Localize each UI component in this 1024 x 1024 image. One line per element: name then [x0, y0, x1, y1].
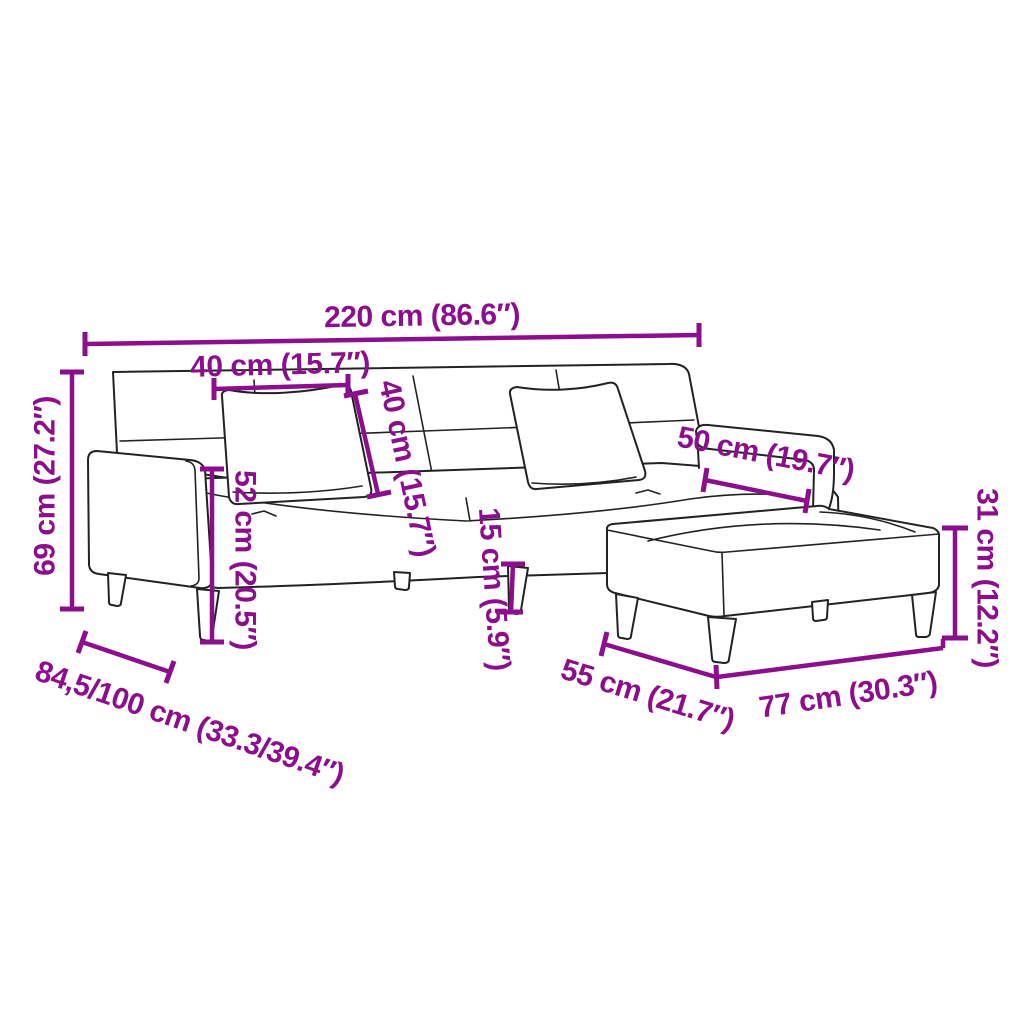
sofa-dimension-diagram: 220 cm (86.6″) 40 cm (15.7″) 40 cm (15.7… [0, 0, 1024, 1024]
diagram-canvas: 220 cm (86.6″) 40 cm (15.7″) 40 cm (15.7… [0, 0, 1024, 1024]
dim-back-height: 69 cm (27.2″) [29, 372, 85, 609]
dimension-label: 31 cm (12.2″) [971, 488, 1004, 668]
sofa-illustration [88, 364, 939, 663]
dimension-label: 84,5/100 cm (33.3/39.4″) [31, 655, 348, 792]
dimension-label: 52 cm (20.5″) [229, 470, 262, 650]
dimension-label: 69 cm (27.2″) [29, 396, 62, 576]
dimension-label: 40 cm (15.7″) [190, 346, 370, 384]
dim-depth-range: 84,5/100 cm (33.3/39.4″) [31, 631, 348, 791]
dim-footstool-height: 31 cm (12.2″) [942, 488, 1004, 668]
dimension-label: 55 cm (21.7″) [557, 653, 738, 737]
dim-footstool-width: 77 cm (30.3″) [717, 639, 943, 725]
dimension-label: 77 cm (30.3″) [757, 665, 940, 724]
sofa-armrest-left [88, 451, 212, 588]
dimension-label: 220 cm (86.6″) [324, 298, 520, 334]
dim-overall-width: 220 cm (86.6″) [85, 298, 699, 356]
